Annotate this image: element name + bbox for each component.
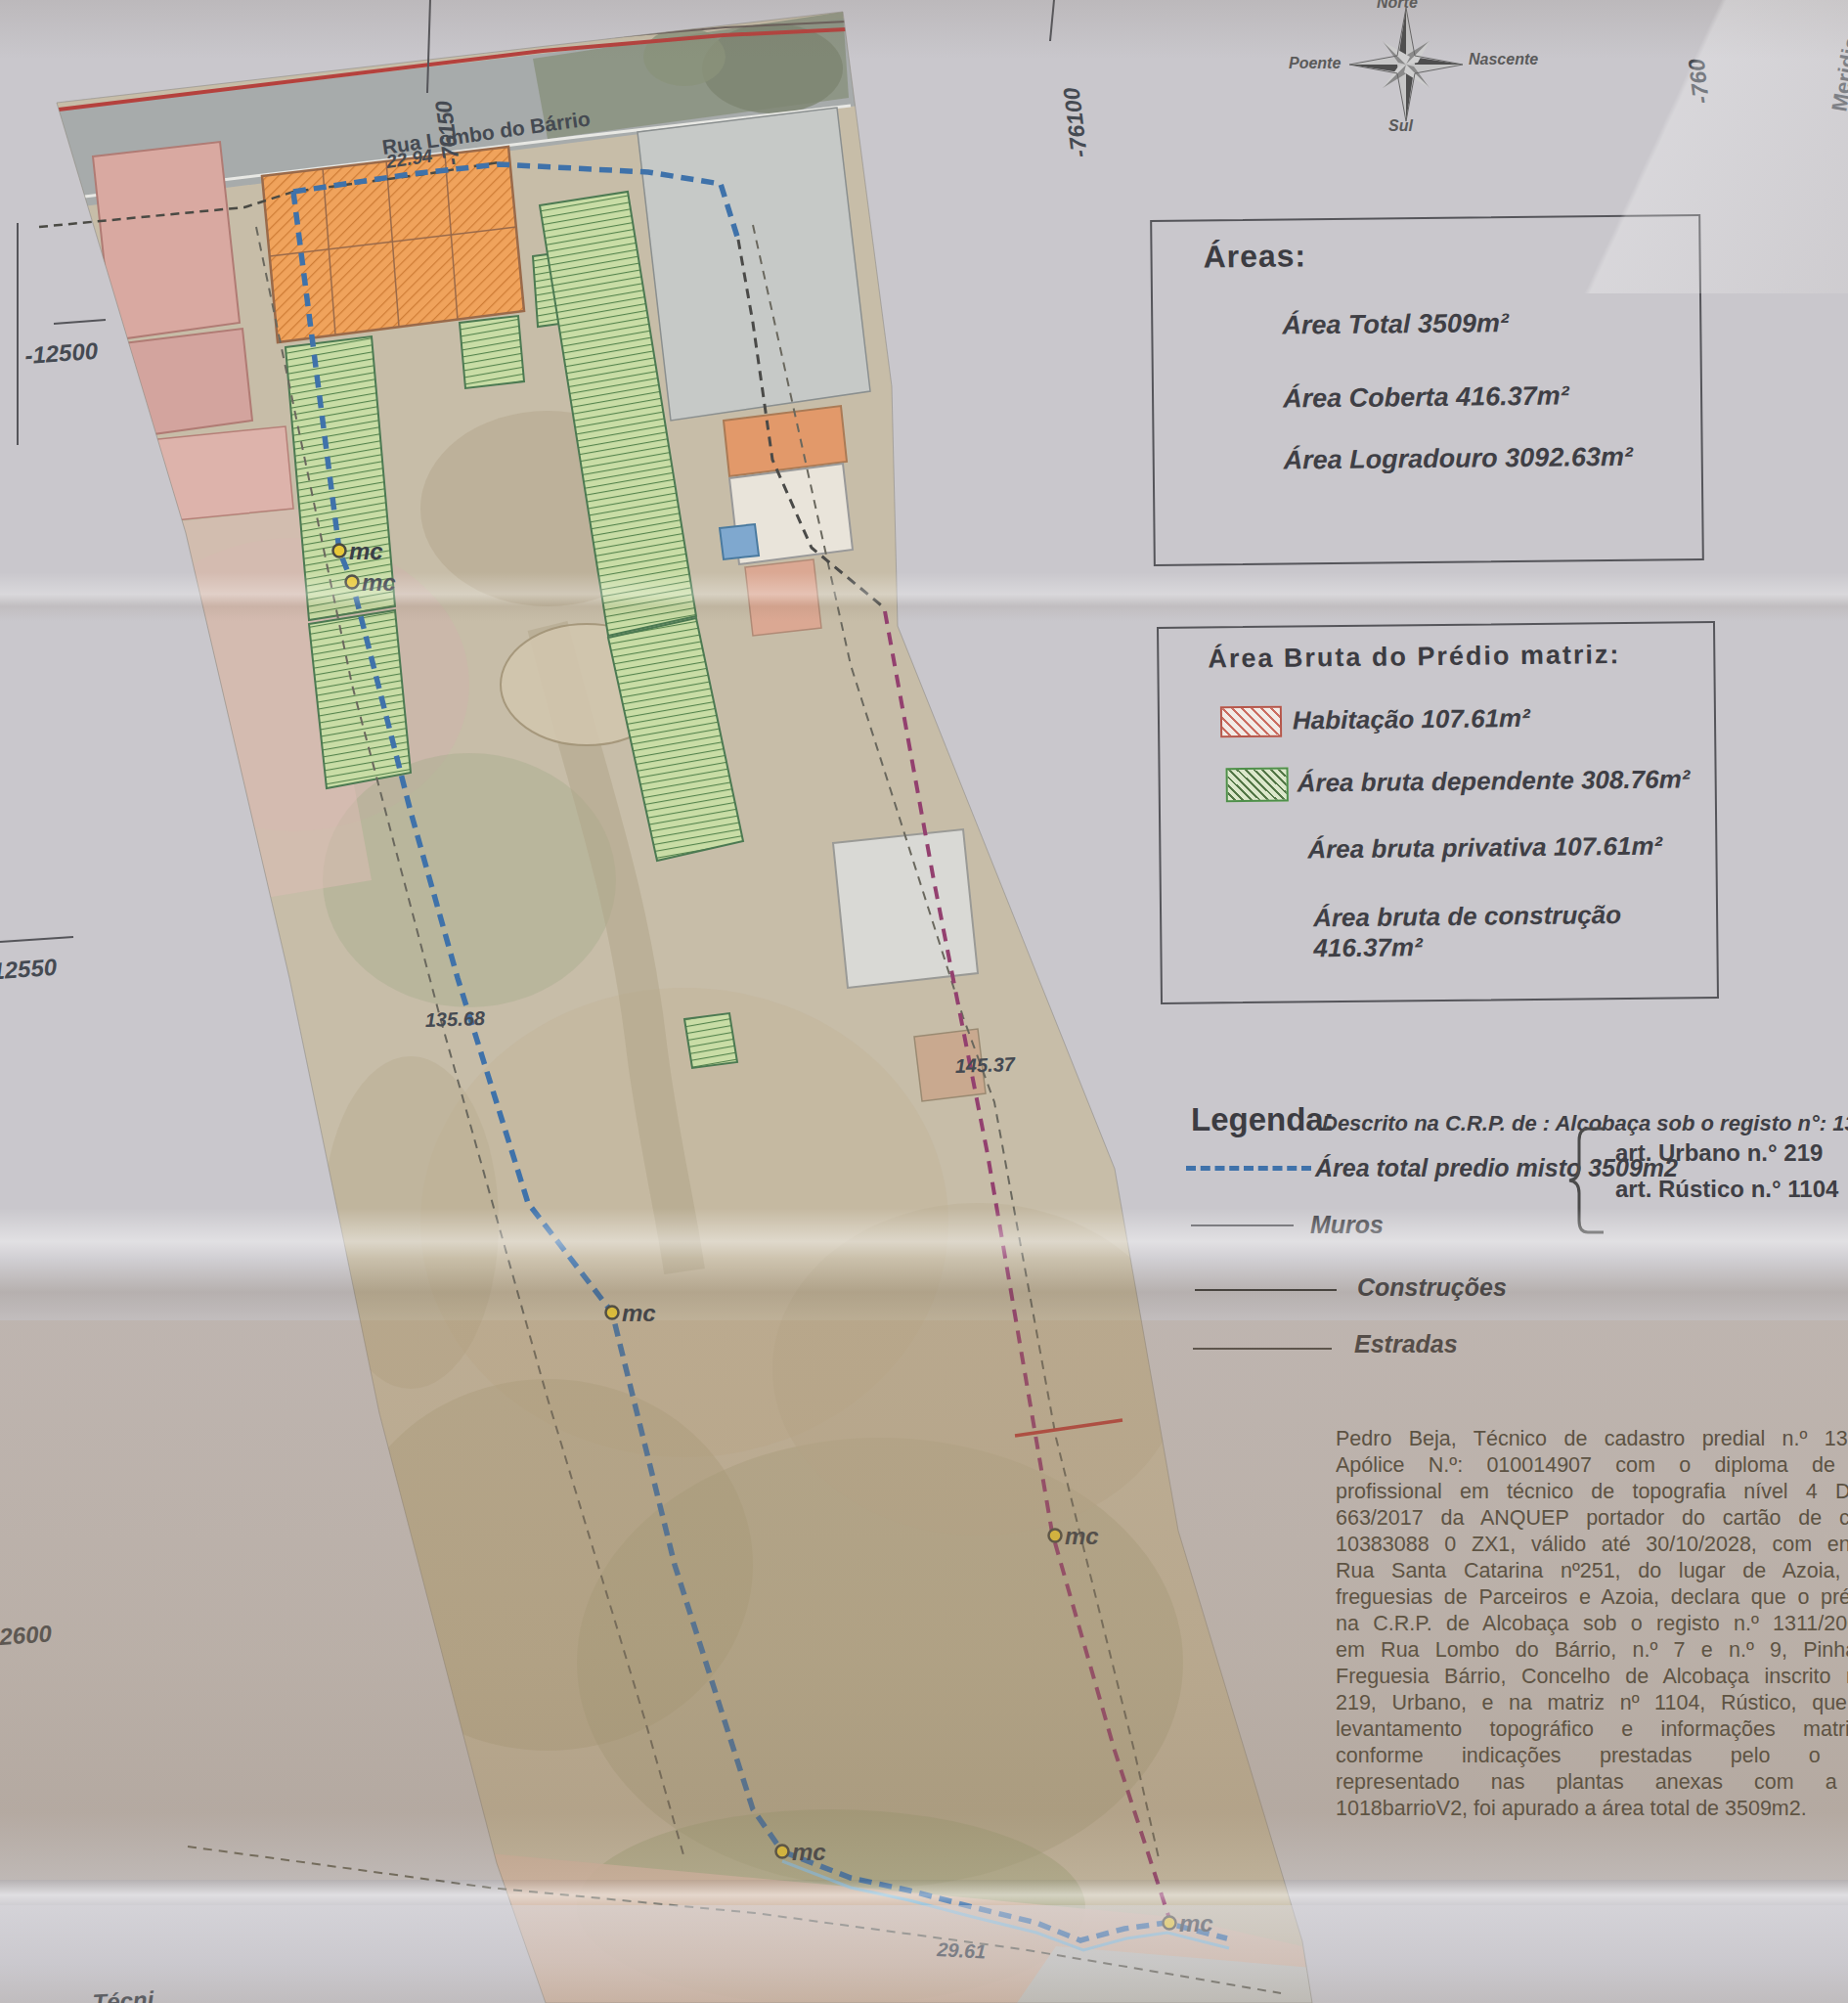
dim-bottom: 29.61 (936, 1938, 987, 1963)
dependente-swatch (1226, 768, 1289, 803)
declaration-line: Pedro Beja, Técnico de cadastro predial … (1336, 1426, 1848, 1452)
area-total: Área Total 3509m² (1282, 308, 1509, 340)
legend-brace (1564, 1123, 1606, 1238)
legend-construcoes-label: Construções (1357, 1273, 1507, 1302)
edge-fragment: Técni (92, 1986, 155, 2003)
declaration-line: Rua Santa Catarina nº251, do lugar de Az… (1336, 1558, 1848, 1584)
legend-construcoes-line (1195, 1289, 1337, 1291)
legend-estradas-label: Estradas (1354, 1330, 1458, 1358)
compass-label-south: Sul (1388, 117, 1413, 135)
survey-plan-photo: mc mc mc mc mc mc Rua Lombo do Bárrio 22… (0, 0, 1848, 2003)
declaration-line: em Rua Lombo do Bárrio, n.º 7 e n.º 9, P… (1336, 1637, 1848, 1664)
declaration-line: conforme indicações prestadas pelo o pro… (1336, 1743, 1848, 1769)
privativa-label: Área bruta privativa 107.61m² (1307, 831, 1662, 866)
svg-text:mc: mc (622, 1300, 656, 1326)
declaration-line: 10383088 0 ZX1, válido até 30/10/2028, c… (1336, 1532, 1848, 1558)
neighbour-parcel-right (638, 108, 870, 421)
compass-rose (1340, 2, 1473, 127)
area-bruta-title: Área Bruta do Prédio matriz: (1208, 640, 1620, 674)
grid-x-12600-partial: 2600 (0, 1620, 53, 1650)
legend-estradas-line (1193, 1348, 1332, 1350)
habitacao-swatch (1220, 706, 1282, 738)
declaration-line: 663/2017 da ANQUEP portador do cartão de… (1336, 1505, 1848, 1532)
legend-muros-line (1191, 1224, 1294, 1226)
svg-text:mc: mc (1179, 1910, 1213, 1936)
grid-y-76100: -76100 (1058, 86, 1092, 158)
legend-art-urbano: art. Urbano n.° 219 (1615, 1139, 1823, 1167)
declaration-line: na C.R.P. de Alcobaça sob o registo n.º … (1336, 1611, 1848, 1637)
declaration-line: profissional em técnico de topografia ní… (1336, 1479, 1848, 1505)
areas-box: Áreas: Área Total 3509m² Área Coberta 41… (1150, 214, 1704, 566)
svg-text:mc: mc (349, 538, 383, 564)
declaration-line: levantamento topográfico e informações m… (1336, 1716, 1848, 1743)
svg-text:mc: mc (362, 569, 396, 596)
area-logradouro: Área Logradouro 3092.63m² (1284, 442, 1633, 476)
grid-x-12550: -12550 (0, 954, 59, 985)
habitacao-label: Habitação 107.61m² (1293, 703, 1530, 736)
compass-label-west: Poente (1289, 55, 1341, 72)
dependente-label: Área bruta dependente 308.76m² (1298, 764, 1691, 798)
construcao-label: Área bruta de construção 416.37m² (1313, 899, 1717, 963)
area-bruta-box: Área Bruta do Prédio matriz: Habitação 1… (1157, 621, 1719, 1004)
areas-box-title: Áreas: (1203, 238, 1306, 275)
declaration-line: 219, Urbano, e na matriz nº 1104, Rústic… (1336, 1690, 1848, 1716)
legend-title: Legenda: (1191, 1101, 1335, 1138)
declaration-line: 1018barrioV2, foi apurado a área total d… (1336, 1796, 1848, 1822)
legend-art-rustico: art. Rústico n.° 1104 (1615, 1176, 1838, 1203)
dim-right: 145.37 (954, 1053, 1016, 1077)
declaration-line: Apólice N.º: 010014907 com o diploma de … (1336, 1452, 1848, 1479)
compass-label-east: Nascente (1469, 51, 1538, 68)
declaration-line: Freguesia Bárrio, Concelho de Alcobaça i… (1336, 1664, 1848, 1690)
dim-left: 135.68 (424, 1007, 486, 1031)
grid-y-760-partial: -760 (1684, 57, 1714, 105)
legend-muros-label: Muros (1310, 1211, 1384, 1239)
compass-label-north: Norte (1377, 0, 1418, 12)
area-coberta: Área Coberta 416.37m² (1283, 380, 1569, 414)
declaration-line: freguesias de Parceiros e Azoia, declara… (1336, 1584, 1848, 1611)
grid-meridian-fragment: Meridia (1826, 34, 1848, 113)
declaration-line: representado nas plantas anexas com a de… (1336, 1769, 1848, 1796)
svg-text:mc: mc (1065, 1523, 1099, 1549)
aerial-photo-strip (39, 12, 1312, 2003)
declaration-paragraph: Pedro Beja, Técnico de cadastro predial … (1336, 1426, 1848, 1822)
legend-blue-dashed-swatch (1186, 1166, 1311, 1171)
grid-x-12500: -12500 (23, 337, 99, 369)
building-mid-white (833, 829, 978, 988)
svg-text:mc: mc (792, 1839, 826, 1865)
